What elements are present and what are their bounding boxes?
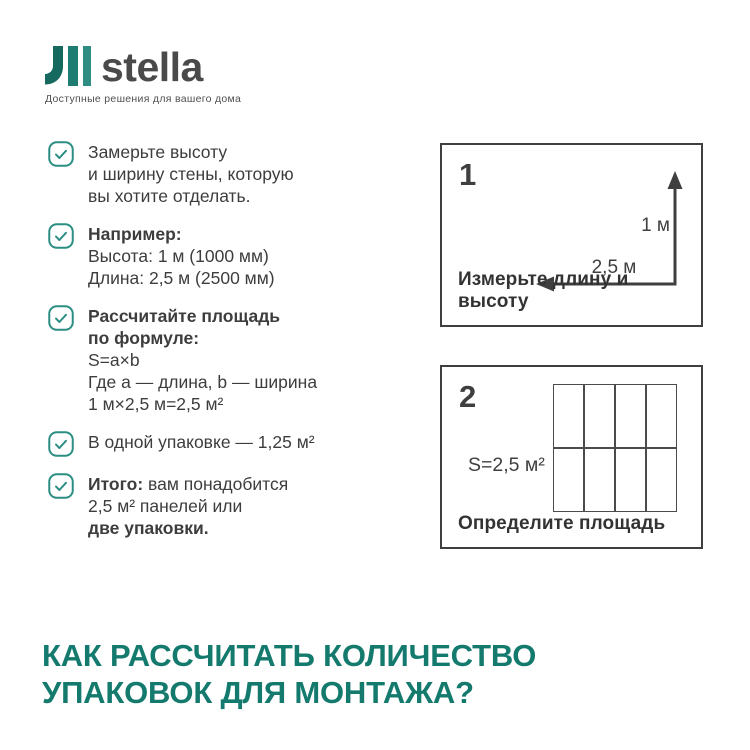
text-segment: Длина: 2,5 м (2500 мм): [88, 268, 275, 288]
panel-cell: [616, 449, 645, 511]
page-title-line2: УПАКОВОК ДЛЯ МОНТАЖА?: [42, 674, 682, 711]
checklist-item-text: Замерьте высотуи ширину стены, которуювы…: [88, 141, 294, 207]
figure-box-area: 2 S=2,5 м² Определите площадь: [440, 365, 703, 549]
area-formula-label: S=2,5 м²: [468, 454, 545, 477]
checklist-item: В одной упаковке — 1,25 м²: [48, 431, 408, 457]
text-line: 1 м×2,5 м=2,5 м²: [88, 393, 317, 415]
text-line: Итого: вам понадобится: [88, 473, 288, 495]
checklist-item-text: В одной упаковке — 1,25 м²: [88, 431, 315, 453]
text-segment: вы хотите отделать.: [88, 186, 251, 206]
text-line: вы хотите отделать.: [88, 185, 294, 207]
page-title-line1: КАК РАССЧИТАТЬ КОЛИЧЕСТВО: [42, 637, 682, 674]
checklist-item-text: Итого: вам понадобится2,5 м² панелей или…: [88, 473, 288, 539]
figure-box-measure: 1 1 м 2,5 м Измерьте длину и высоту: [440, 143, 703, 327]
text-segment: Замерьте высоту: [88, 142, 227, 162]
panel-cell: [554, 449, 583, 511]
checkmark-icon: [48, 223, 74, 249]
panel-cell: [647, 385, 676, 447]
text-line: Например:: [88, 223, 275, 245]
brand-logo: stella Доступные решения для вашего дома: [45, 46, 241, 105]
page-title: КАК РАССЧИТАТЬ КОЛИЧЕСТВО УПАКОВОК ДЛЯ М…: [42, 637, 682, 711]
text-segment: вам понадобится: [143, 474, 288, 494]
checkmark-icon: [48, 141, 74, 167]
checklist-item-text: Например:Высота: 1 м (1000 мм)Длина: 2,5…: [88, 223, 275, 289]
figure-caption: Определите площадь: [458, 513, 665, 535]
checkmark-icon: [48, 305, 74, 331]
figure-number: 2: [459, 379, 476, 415]
text-line: Высота: 1 м (1000 мм): [88, 245, 275, 267]
text-line: и ширину стены, которую: [88, 163, 294, 185]
text-segment: и ширину стены, которую: [88, 164, 294, 184]
panel-cell: [647, 449, 676, 511]
text-segment: Итого:: [88, 474, 143, 494]
text-segment: 1 м×2,5 м=2,5 м²: [88, 394, 223, 414]
panel-cell: [554, 385, 583, 447]
text-segment: Рассчитайте площадь: [88, 306, 280, 326]
panel-cell: [585, 449, 614, 511]
text-segment: Например:: [88, 224, 182, 244]
text-segment: В одной упаковке — 1,25 м²: [88, 432, 315, 452]
text-line: 2,5 м² панелей или: [88, 495, 288, 517]
text-line: две упаковки.: [88, 517, 288, 539]
checklist: Замерьте высотуи ширину стены, которуювы…: [48, 141, 408, 555]
text-line: Где a — длина, b — ширина: [88, 371, 317, 393]
text-line: Длина: 2,5 м (2500 мм): [88, 267, 275, 289]
height-dimension-label: 1 м: [602, 215, 670, 237]
text-segment: S=a×b: [88, 350, 140, 370]
brand-tagline: Доступные решения для вашего дома: [45, 93, 241, 105]
text-segment: две упаковки.: [88, 518, 209, 538]
checklist-item: Например:Высота: 1 м (1000 мм)Длина: 2,5…: [48, 223, 408, 289]
figure-caption: Измерьте длину и высоту: [458, 269, 701, 313]
checkmark-icon: [48, 431, 74, 457]
text-line: В одной упаковке — 1,25 м²: [88, 431, 315, 453]
checklist-item: Замерьте высотуи ширину стены, которуювы…: [48, 141, 408, 207]
logo-row: stella: [45, 46, 241, 87]
stella-logo-icon: [45, 46, 91, 87]
text-line: S=a×b: [88, 349, 317, 371]
panels-grid: [553, 384, 677, 512]
checklist-item-text: Рассчитайте площадьпо формуле:S=a×bГде a…: [88, 305, 317, 415]
text-line: Рассчитайте площадь: [88, 305, 317, 327]
text-segment: 2,5 м² панелей или: [88, 496, 242, 516]
text-line: Замерьте высоту: [88, 141, 294, 163]
checkmark-icon: [48, 473, 74, 499]
text-segment: Высота: 1 м (1000 мм): [88, 246, 269, 266]
brand-name: stella: [101, 47, 203, 87]
text-segment: по формуле:: [88, 328, 199, 348]
checklist-item: Рассчитайте площадьпо формуле:S=a×bГде a…: [48, 305, 408, 415]
text-line: по формуле:: [88, 327, 317, 349]
checklist-item: Итого: вам понадобится2,5 м² панелей или…: [48, 473, 408, 539]
panel-cell: [585, 385, 614, 447]
panel-cell: [616, 385, 645, 447]
text-segment: Где a — длина, b — ширина: [88, 372, 317, 392]
